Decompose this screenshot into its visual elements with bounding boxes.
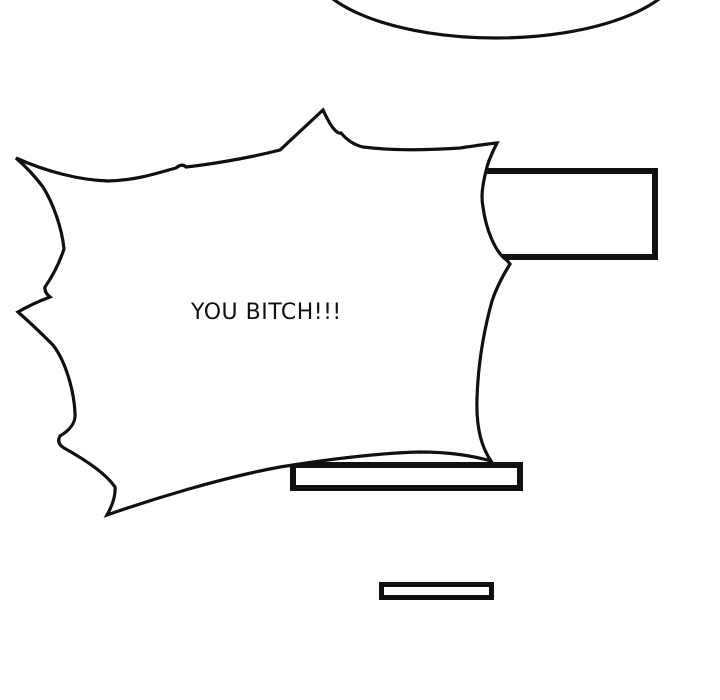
- top-speech-bubble: [311, 0, 681, 38]
- panel-frame-middle: [293, 465, 520, 488]
- comic-artwork: [0, 0, 720, 700]
- burst-bubble-text: YOU BITCH!!!: [191, 301, 361, 325]
- panel-frame-bottom: [382, 585, 492, 598]
- comic-panel: YOU BITCH!!!: [0, 0, 720, 700]
- panel-frame-right: [469, 171, 655, 257]
